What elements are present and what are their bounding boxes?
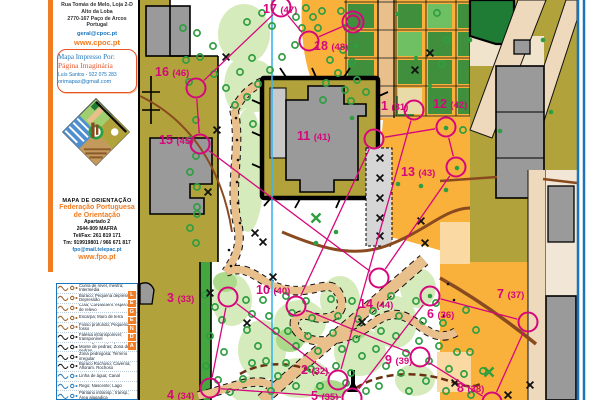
- small-tree-icon: [414, 56, 419, 61]
- small-tree-icon: [549, 110, 554, 115]
- legend-row: Fosso profundo; Pequeno fosso: [57, 323, 137, 333]
- legenda-letter: G: [128, 308, 136, 316]
- small-tree-icon: [314, 241, 319, 246]
- orienteering-map-sheet: 1 (31)2 (32)3 (33)4 (34)5 (35)6 (36)7 (3…: [0, 0, 600, 400]
- control-label: 14 (44): [359, 297, 393, 311]
- legend-row: Linha de água; Canal: [57, 372, 137, 382]
- club-address-line: Portugal: [55, 22, 139, 29]
- legend-row: Buraco; Pequena depressão; Depressão: [57, 294, 137, 304]
- small-tree-icon: [396, 182, 401, 187]
- federation-name: Federação Portuguesa: [55, 204, 139, 212]
- legend-row: Pedra grande; pequena; Monte de pedras; …: [57, 343, 137, 353]
- printer-email[interactable]: orimapas@gmail.com: [58, 79, 136, 85]
- legend-label: Zona pedregosa; Terreno irregular: [79, 352, 137, 361]
- club-address-line: Alto da Loba: [55, 9, 139, 16]
- small-tree-icon: [334, 230, 339, 235]
- control-label: 2 (32): [301, 363, 328, 377]
- legenda-letter: N: [128, 325, 136, 333]
- boulder-dot-icon: [237, 159, 240, 162]
- sidebar-accent-bar: [48, 0, 53, 272]
- fpo-logo: [62, 98, 130, 166]
- spring-lake-icon: [57, 382, 79, 390]
- control-label: 15 (45): [159, 133, 193, 147]
- boulder-dot-icon: [239, 222, 242, 225]
- federation-website-link[interactable]: www.fpo.pt: [55, 254, 139, 261]
- control-label: 8 (38): [457, 381, 484, 395]
- boulder-dot-icon: [447, 283, 450, 286]
- legenda-letter: L: [128, 291, 136, 299]
- legend-row: Buraco Rochoso; Caverna; Afloram. Rochos…: [57, 362, 137, 372]
- printer-title: Mapa Impresso Por:: [58, 53, 136, 61]
- ditch-icon: [57, 323, 79, 331]
- knoll-special-relief-icon: [57, 304, 79, 312]
- boulder-dot-icon: [453, 299, 456, 302]
- legend-rows: Curva de nível, mestra; IntermédiaBuraco…: [57, 284, 137, 400]
- legend-label: Escarpa; Muro de terra: [79, 315, 123, 320]
- info-sidebar: Rua Tomás de Melo, Loja 2-D Alto da Loba…: [0, 0, 140, 400]
- earth-bank-wall-icon: [57, 314, 79, 322]
- legend-row: Escarpa; Muro de terra: [57, 313, 137, 323]
- cliff-icon: [57, 333, 79, 341]
- map-left-border: [138, 0, 140, 400]
- small-tree-icon: [350, 116, 355, 121]
- small-tree-icon: [396, 12, 401, 17]
- small-tree-icon: [468, 38, 473, 43]
- legenda-letter: A: [128, 342, 136, 350]
- small-tree-icon: [444, 188, 449, 193]
- small-tree-icon: [419, 184, 424, 189]
- legend-label: Rego; Nascente; Lago: [79, 384, 122, 389]
- control-label: 17 (47): [263, 2, 297, 16]
- legend-row: Zona pedregosa; Terreno irregular: [57, 352, 137, 362]
- legend-label: Buraco Rochoso; Caverna; Afloram. Rochos…: [79, 362, 137, 371]
- legend-label: Linha de água; Canal: [79, 374, 120, 379]
- small-tree-icon: [444, 126, 449, 131]
- federation-address-line: Apartado 2: [55, 219, 139, 226]
- boulder-dot-icon: [228, 249, 231, 252]
- legend-title-vertical: LEGENDA: [128, 291, 136, 350]
- small-tree-icon: [455, 166, 460, 171]
- control-label: 16 (46): [155, 65, 189, 79]
- federation-address-line: 2644-909 MAFRA: [55, 226, 139, 233]
- control-label: 18 (48): [314, 39, 348, 53]
- control-label: 1 (31): [381, 99, 408, 113]
- boulders-stones-icon: [57, 343, 79, 351]
- legend-row: Cota; Curva/Elem. especial de relevo: [57, 304, 137, 314]
- rock-hole-cave-icon: [57, 362, 79, 370]
- legend-row: Rego; Nascente; Lago: [57, 382, 137, 392]
- small-tree-icon: [354, 44, 359, 49]
- stony-ground-icon: [57, 353, 79, 361]
- boulder-dot-icon: [235, 117, 238, 120]
- control-label: 3 (33): [167, 291, 194, 305]
- contour-lines-icon: [57, 284, 79, 292]
- rough-open-patch: [440, 222, 470, 264]
- printer-credit-box: Mapa Impresso Por: Página Imaginária Luí…: [57, 49, 137, 93]
- legend-box: Curva de nível, mestra; IntermédiaBuraco…: [56, 283, 138, 400]
- federation-address-line: Tel/Fax: 261 819 171: [55, 233, 139, 240]
- control-label: 7 (37): [497, 287, 524, 301]
- building: [548, 186, 574, 242]
- legend-label: Pântano intransp.; transp.; Área alagadi…: [79, 391, 137, 400]
- club-block: Rua Tomás de Melo, Loja 2-D Alto da Loba…: [55, 2, 139, 47]
- legenda-letter: D: [128, 334, 136, 342]
- control-label: 9 (39): [385, 353, 412, 367]
- boulder-dot-icon: [236, 181, 239, 184]
- legend-row: Pântano intransp.; transp.; Área alagadi…: [57, 391, 137, 400]
- road-vertical: [528, 170, 546, 400]
- printer-name: Página Imaginária: [58, 61, 136, 70]
- marsh-icon: [57, 392, 79, 400]
- boulder-dot-icon: [236, 139, 239, 142]
- federation-email[interactable]: fpo@mail.telepac.pt: [55, 247, 139, 253]
- club-address-line: 2770-167 Paço de Arcos: [55, 16, 139, 23]
- club-website-link[interactable]: www.cpoc.pt: [55, 38, 139, 47]
- legenda-letter: E: [128, 300, 136, 308]
- control-label: 6 (36): [427, 307, 454, 321]
- printer-contact: Luís Santos - 922 075 283: [58, 72, 136, 78]
- legend-row: Falésia intransponível; transponível: [57, 333, 137, 343]
- building: [514, 40, 530, 54]
- club-email[interactable]: geral@cpoc.pt: [55, 31, 139, 37]
- watercourse-canal-icon: [57, 372, 79, 380]
- club-address-line: Rua Tomás de Melo, Loja 2-D: [55, 2, 139, 9]
- building: [546, 296, 576, 400]
- control-label: 13 (43): [401, 165, 435, 179]
- boulder-dot-icon: [230, 265, 233, 268]
- pit-depression-icon: [57, 294, 79, 302]
- small-tree-icon: [428, 294, 433, 299]
- small-tree-icon: [541, 38, 546, 43]
- small-tree-icon: [498, 129, 503, 134]
- control-label: 12 (42): [433, 97, 467, 111]
- control-label: 10 (40): [256, 283, 290, 297]
- federation-block: MAPA DE ORIENTAÇÃO Federação Portuguesa …: [55, 198, 139, 261]
- federation-address-line: Tm: 919919801 / 966 671 817: [55, 240, 139, 247]
- federation-name: de Orientação: [55, 212, 139, 220]
- small-tree-icon: [428, 84, 433, 89]
- boulder-dot-icon: [237, 202, 240, 205]
- control-label: 11 (41): [297, 129, 331, 143]
- legenda-letter: E: [128, 317, 136, 325]
- legend-row: Curva de nível, mestra; Intermédia: [57, 284, 137, 294]
